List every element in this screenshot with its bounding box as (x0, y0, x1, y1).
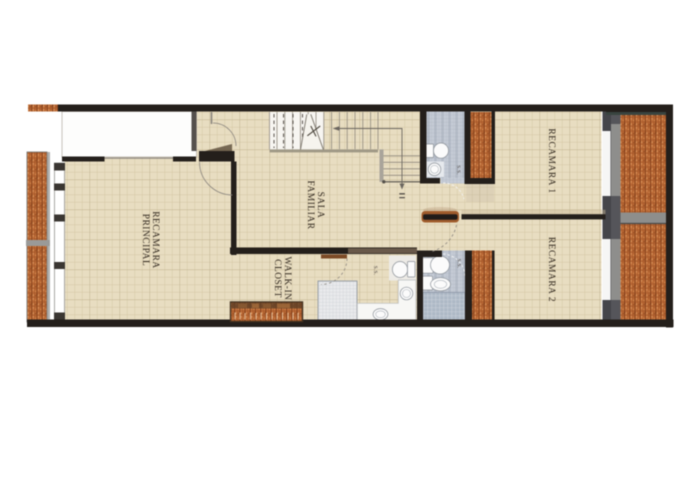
svg-text:RECAMARAPRINCIPAL: RECAMARAPRINCIPAL (140, 211, 160, 269)
svg-text:WALK-INCLOSET: WALK-INCLOSET (272, 257, 292, 301)
svg-text:S.S.: S.S. (456, 259, 462, 269)
svg-text:S.S.: S.S. (455, 165, 461, 175)
svg-text:RECAMARA 2: RECAMARA 2 (546, 237, 556, 302)
svg-text:S.S.: S.S. (372, 266, 378, 276)
svg-text:RECAMARA 1: RECAMARA 1 (546, 128, 556, 193)
